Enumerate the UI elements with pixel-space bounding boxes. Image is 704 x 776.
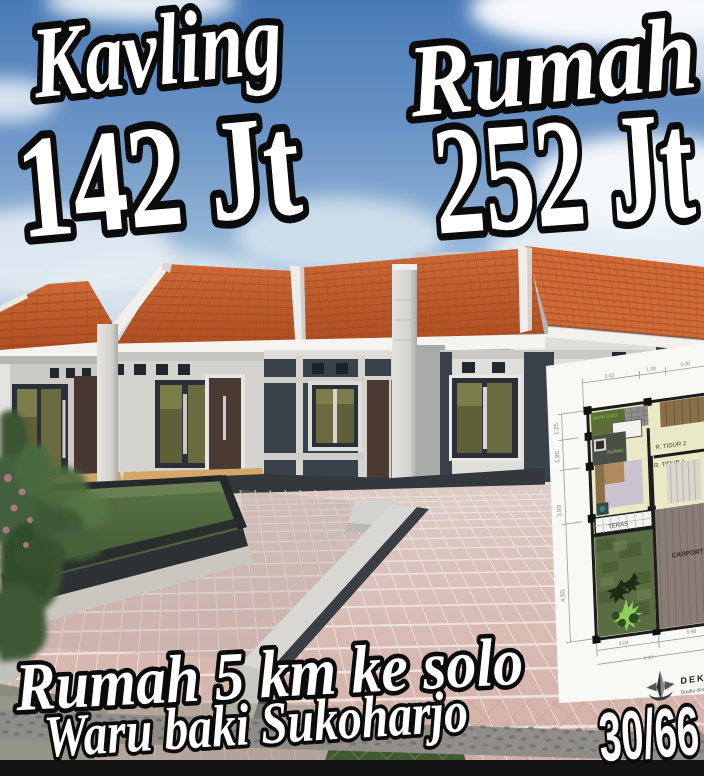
svg-text:3.80: 3.80 — [557, 504, 563, 517]
svg-text:142 Jt: 142 Jt — [11, 84, 307, 270]
svg-text:30/66: 30/66 — [596, 691, 701, 776]
svg-text:4.50: 4.50 — [560, 589, 566, 602]
svg-text:1.85: 1.85 — [555, 450, 561, 463]
svg-text:252 Jt: 252 Jt — [428, 77, 699, 267]
svg-text:1.25: 1.25 — [554, 422, 560, 435]
